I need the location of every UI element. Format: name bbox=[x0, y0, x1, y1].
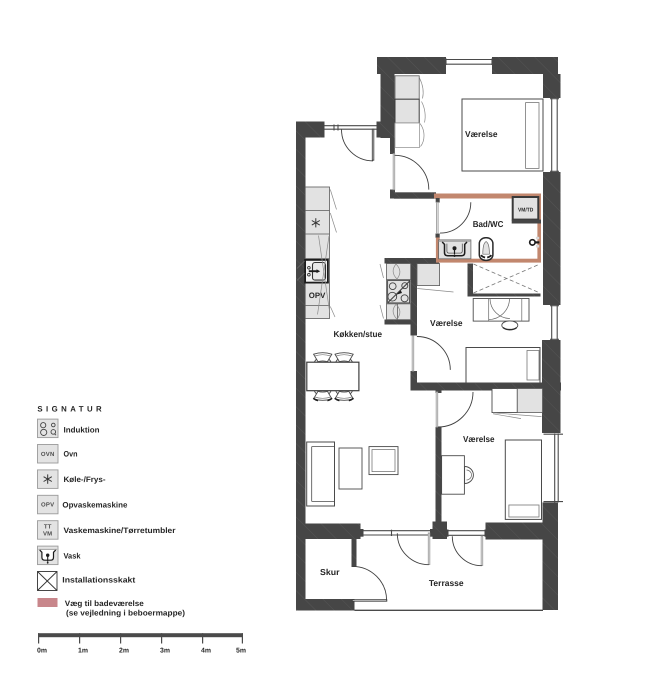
svg-text:Induktion: Induktion bbox=[64, 425, 100, 434]
svg-text:Værelse: Værelse bbox=[430, 318, 463, 328]
svg-text:OVN: OVN bbox=[41, 451, 55, 458]
svg-text:Værelse: Værelse bbox=[463, 434, 495, 444]
svg-text:Opvaskemaskine: Opvaskemaskine bbox=[62, 501, 128, 510]
svg-text:Værelse: Værelse bbox=[465, 129, 498, 139]
svg-text:3m: 3m bbox=[160, 648, 170, 655]
svg-text:Køkken/stue: Køkken/stue bbox=[334, 329, 383, 339]
svg-text:1m: 1m bbox=[78, 648, 88, 655]
svg-text:Ovn: Ovn bbox=[64, 450, 78, 459]
svg-text:Bad/WC: Bad/WC bbox=[473, 219, 504, 229]
svg-text:VM/TD: VM/TD bbox=[518, 207, 533, 213]
svg-text:Væg til badeværelse: Væg til badeværelse bbox=[65, 599, 145, 608]
svg-text:Skur: Skur bbox=[320, 567, 340, 577]
svg-text:OPV: OPV bbox=[309, 291, 326, 300]
svg-text:4m: 4m bbox=[201, 648, 211, 655]
svg-text:TT: TT bbox=[44, 524, 52, 531]
svg-text:OPV: OPV bbox=[41, 502, 54, 509]
svg-text:Vaskemaskine/Tørretumbler: Vaskemaskine/Tørretumbler bbox=[64, 526, 176, 535]
svg-text:2m: 2m bbox=[119, 648, 129, 655]
svg-text:Terrasse: Terrasse bbox=[429, 578, 464, 588]
svg-text:Køle-/Frys-: Køle-/Frys- bbox=[64, 475, 106, 484]
svg-text:Installationsskakt: Installationsskakt bbox=[62, 576, 135, 585]
svg-text:VM: VM bbox=[43, 531, 52, 538]
svg-text:Vask: Vask bbox=[64, 551, 82, 560]
svg-text:SIGNATUR: SIGNATUR bbox=[37, 405, 105, 414]
svg-text:(se vejledning i beboermappe): (se vejledning i beboermappe) bbox=[66, 609, 185, 618]
svg-text:0m: 0m bbox=[37, 648, 47, 655]
svg-text:5m: 5m bbox=[236, 648, 246, 655]
